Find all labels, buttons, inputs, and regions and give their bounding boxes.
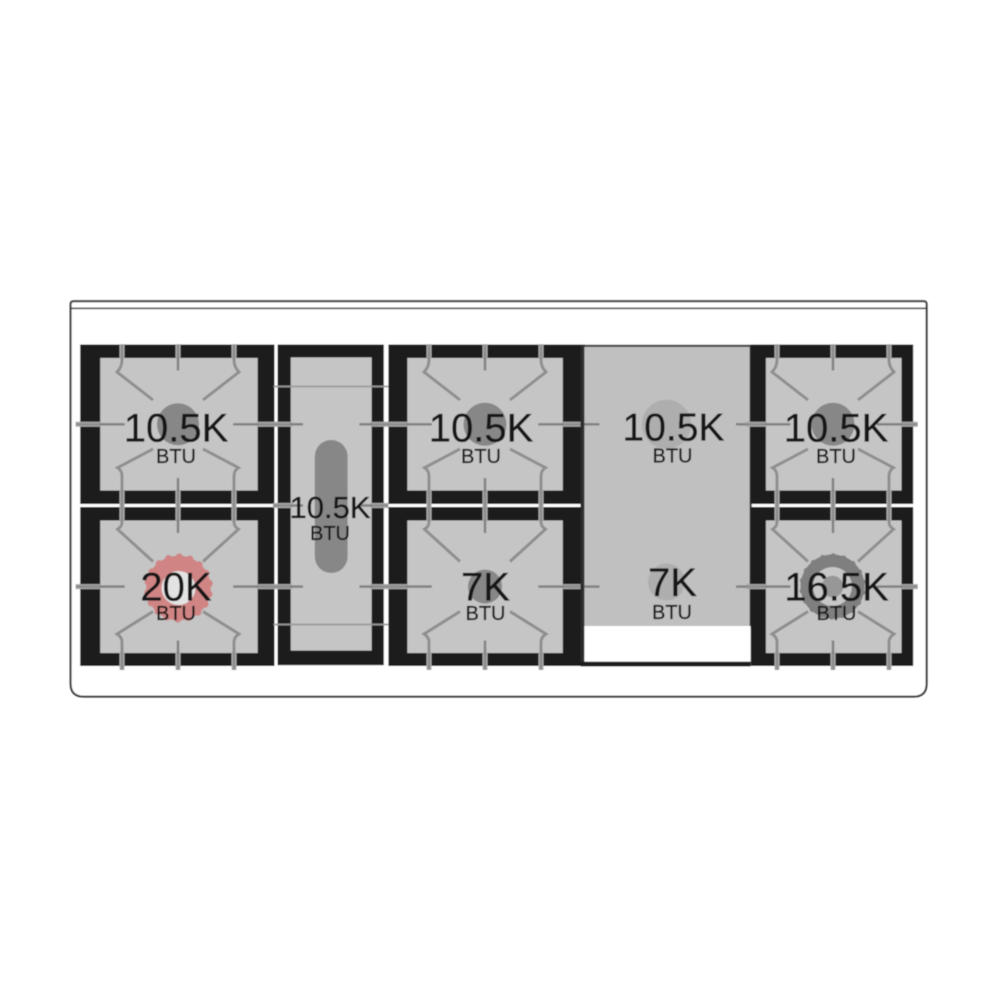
svg-text:BTU: BTU (461, 446, 501, 468)
svg-text:BTU: BTU (652, 602, 692, 624)
svg-text:7K: 7K (648, 561, 697, 605)
svg-text:BTU: BTU (156, 446, 196, 468)
svg-text:10.5K: 10.5K (289, 490, 370, 525)
svg-text:10.5K: 10.5K (124, 407, 229, 451)
svg-text:10.5K: 10.5K (429, 407, 534, 451)
svg-text:BTU: BTU (817, 603, 857, 625)
svg-text:10.5K: 10.5K (623, 407, 725, 450)
svg-text:10.5K: 10.5K (784, 407, 889, 451)
svg-text:BTU: BTU (466, 603, 506, 625)
svg-text:BTU: BTU (156, 603, 196, 625)
svg-text:BTU: BTU (816, 446, 856, 468)
svg-text:BTU: BTU (653, 446, 693, 468)
svg-text:BTU: BTU (310, 523, 350, 545)
